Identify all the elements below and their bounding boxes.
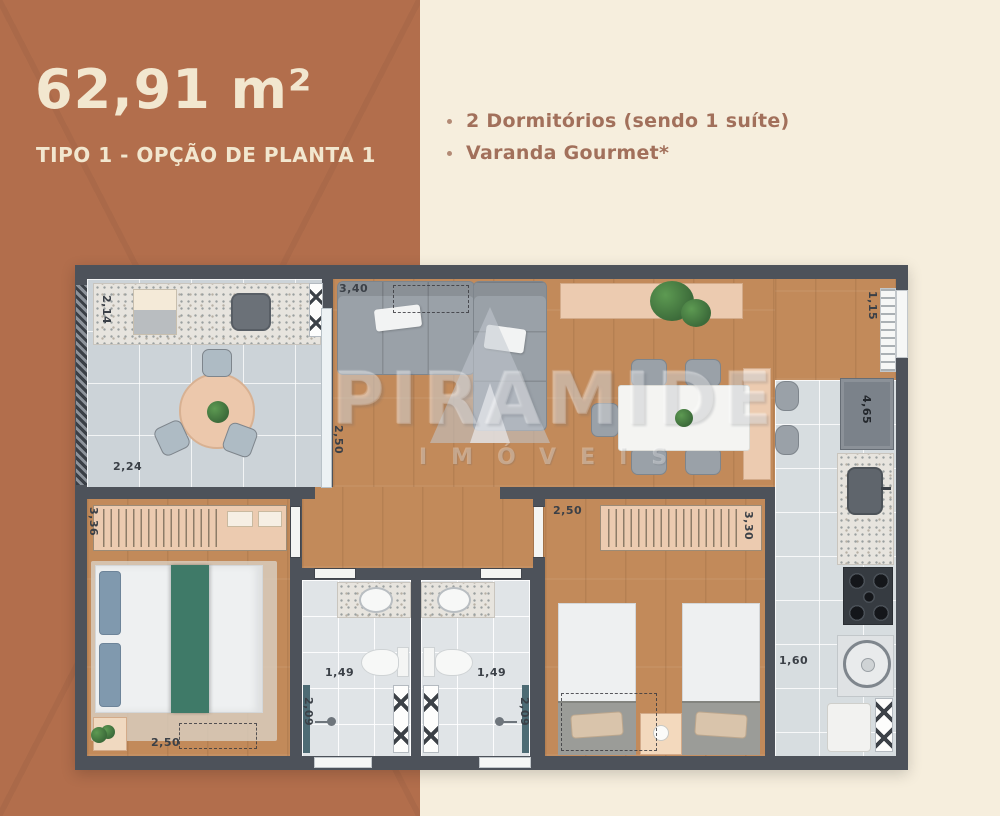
feature-item-varanda: Varanda Gourmet* [447, 142, 790, 164]
dim-living-depth: 2,50 [333, 425, 344, 454]
table-plant [207, 401, 229, 423]
wall-top [75, 265, 908, 279]
wall-suite-right-a [290, 499, 302, 507]
wall-suite-top [75, 487, 315, 499]
dim-suite-length: 3,36 [88, 507, 99, 536]
bath1-sink [359, 587, 393, 613]
floor-plant [91, 727, 107, 743]
window-dimension-tag [881, 289, 895, 371]
bath1-shower-arm [315, 721, 329, 723]
bullet-icon [447, 151, 452, 156]
wall-bath-top-a [302, 568, 315, 580]
x-glyph [876, 699, 892, 725]
wardrobe-shelf [227, 511, 253, 527]
bed-pillow [99, 643, 121, 707]
sofa-chaise [473, 281, 547, 431]
wall-bath-divider [411, 580, 421, 756]
bath2-sink [437, 587, 471, 613]
dim-bath2-width: 1,49 [477, 667, 506, 678]
bath2-shower-door [423, 685, 439, 753]
sideboard-plant-leaf [681, 299, 711, 327]
bullet-icon [447, 119, 452, 124]
dim-suite-width: 2,50 [151, 737, 180, 748]
wall-bedroom2-top [500, 487, 775, 499]
dining-chair [631, 447, 667, 475]
dim-bath1-width: 1,49 [325, 667, 354, 678]
cooktop [843, 567, 893, 625]
marketing-floorplan-page: { "header": { "area_value": "62,91 m²", … [0, 0, 1000, 816]
suite-door [291, 507, 300, 557]
dim-varanda-width: 2,24 [113, 461, 142, 472]
feature-item-dormitorios: 2 Dormitórios (sendo 1 suíte) [447, 110, 790, 132]
wardrobe-shelf [258, 511, 282, 527]
dining-chair [685, 447, 721, 475]
dining-chair [591, 403, 619, 437]
x-glyph [424, 686, 438, 719]
floor-plan: PIRAMIDE IMÓVEIS 2,14 2,24 3,40 2,50 1,1… [75, 265, 908, 770]
ac-unit-outline [393, 285, 469, 313]
bath2-toilet-bowl [435, 649, 473, 676]
hall-floor [302, 487, 545, 568]
dim-bath1-depth: 2,09 [303, 697, 314, 726]
dining-chair [685, 359, 721, 387]
bed-runner [171, 565, 209, 713]
kitchen-sink [847, 467, 883, 515]
dim-kitchen-width: 1,60 [779, 655, 808, 666]
x-glyph [310, 310, 322, 336]
bath2-toilet-tank [423, 647, 435, 677]
bath2-door [481, 569, 521, 578]
varanda-chair [202, 349, 232, 377]
feature-list: 2 Dormitórios (sendo 1 suíte) Varanda Go… [447, 110, 790, 174]
dim-living-width: 3,40 [339, 283, 368, 294]
dining-centerpiece-plant [675, 409, 693, 427]
dim-kitchen-length: 4,65 [861, 395, 872, 424]
service-door-marker [875, 698, 893, 752]
varanda-sliding-door [322, 309, 331, 487]
wardrobe-hangers [608, 509, 738, 547]
wardrobe-hangers [103, 509, 217, 547]
bath1-toilet-bowl [361, 649, 399, 676]
varanda-counter [93, 283, 321, 345]
dim-bedroom2-door-width: 2,50 [553, 505, 582, 516]
bedroom2-dashed-outline [561, 693, 657, 751]
x-glyph [876, 725, 892, 751]
x-glyph [394, 719, 408, 752]
bath1-shower-door [393, 685, 409, 753]
single-bed-2-pillow [694, 711, 748, 739]
bath1-window [315, 758, 371, 767]
faucet [881, 487, 891, 490]
bar-stool [775, 425, 799, 455]
bedroom2-door [534, 507, 543, 557]
bath1-door [315, 569, 355, 578]
feature-label: Varanda Gourmet* [466, 142, 669, 164]
area-title: 62,91 m² [35, 58, 313, 121]
varanda-sink [231, 293, 271, 331]
dim-bedroom2-length: 3,30 [743, 511, 754, 540]
wall-bath-top-b [355, 568, 481, 580]
dim-bath2-depth: 2,09 [519, 697, 530, 726]
bar-stool [775, 381, 799, 411]
bath2-shower-arm [503, 721, 517, 723]
tub-drain [861, 658, 875, 672]
suite-dashed-outline [179, 723, 257, 749]
dining-chair [631, 359, 667, 387]
wall-varanda-stub [322, 279, 333, 309]
washing-machine [827, 703, 871, 752]
bath2-window [480, 758, 530, 767]
varanda-railing [76, 285, 87, 485]
plan-type-subtitle: TIPO 1 - OPÇÃO DE PLANTA 1 [36, 143, 376, 167]
dim-entry-wall: 1,15 [867, 291, 878, 320]
varanda-partition-marker [309, 283, 323, 337]
kitchen-window [897, 291, 907, 357]
x-glyph [394, 686, 408, 719]
wall-bedroom2-right [765, 499, 775, 756]
feature-label: 2 Dormitórios (sendo 1 suíte) [466, 110, 790, 132]
x-glyph [310, 284, 322, 310]
wall-bedroom2-left-b [533, 557, 545, 756]
x-glyph [424, 719, 438, 752]
dim-varanda-depth: 2,14 [101, 295, 112, 324]
varanda-appliance [133, 289, 177, 335]
wall-bedroom2-left-a [533, 499, 545, 507]
bed-pillow [99, 571, 121, 635]
wall-suite-right-b [290, 557, 302, 756]
